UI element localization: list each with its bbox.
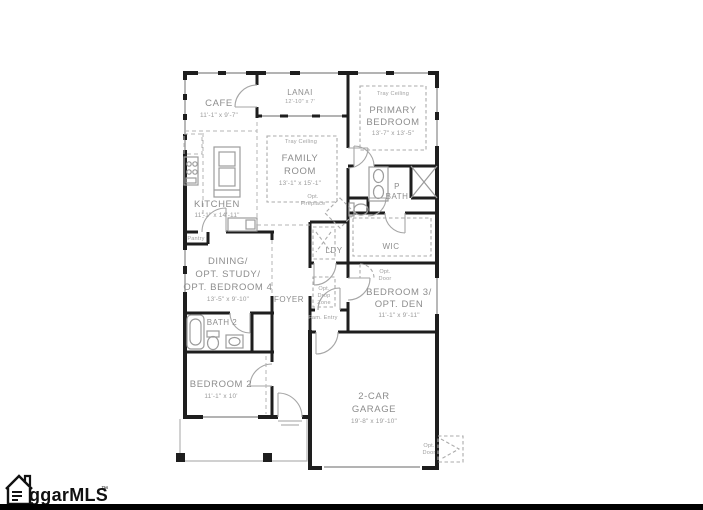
primary-bath-label-2: BATH <box>386 192 409 201</box>
room-bedroom3: Opt. Door BEDROOM 3/ OPT. DEN 11'-1" x 9… <box>366 269 432 319</box>
dining-label-2: OPT. STUDY/ <box>195 269 260 280</box>
family-room-dims: 13'-1" x 15'-1" <box>279 180 321 187</box>
opt-fireplace-label-1: Opt. <box>307 194 319 200</box>
lanai-dims: 12'-10" x 7' <box>285 99 315 105</box>
foyer-label: FOYER <box>274 295 304 304</box>
primary-bedroom-dims: 13'-7" x 13'-5" <box>372 130 414 137</box>
room-bedroom2: BEDROOM 2 11'-1" x 10' <box>190 379 252 400</box>
mls-watermark: ggarMLS ™ <box>6 476 108 505</box>
bedroom2-dims: 11'-1" x 10' <box>204 393 237 400</box>
drop-zone-label-3: Zone <box>317 300 331 306</box>
opt-door-bedroom3-swing <box>360 264 374 278</box>
fam-entry-label: Fam. Entry <box>308 315 337 321</box>
laundry-label: LDY <box>325 246 342 255</box>
mls-trademark: ™ <box>101 486 108 493</box>
kitchen-island <box>214 147 240 197</box>
room-family: Tray Ceiling FAMILY ROOM 13'-1" x 15'-1"… <box>279 139 326 207</box>
tray-ceiling-label: Tray Ceiling <box>377 91 409 97</box>
primary-bath-fixtures <box>349 166 437 216</box>
room-wic: WIC <box>382 242 399 251</box>
room-cafe: CAFE 11'-1" x 9'-7" <box>200 98 238 119</box>
garage-label-1: 2-CAR <box>358 391 390 402</box>
porch-post <box>176 453 185 462</box>
kitchen-label: KITCHEN <box>194 199 240 210</box>
drop-zone-label-1: Opt. <box>318 286 330 292</box>
bedroom3-label-1: BEDROOM 3/ <box>366 287 432 298</box>
primary-bedroom-label-1: PRIMARY <box>369 105 416 116</box>
garage-label-2: GARAGE <box>352 404 396 415</box>
family-room-label-2: ROOM <box>284 166 316 177</box>
bedroom3-dims: 11'-1" x 9'-11" <box>378 312 419 319</box>
opt-door-label-2: Door <box>379 276 392 282</box>
primary-bath-label-1: P <box>394 182 400 191</box>
porch <box>176 419 307 462</box>
opt-door-garage-label-1: Opt. <box>423 443 435 449</box>
cafe-label: CAFE <box>205 98 233 109</box>
cafe-dims: 11'-1" x 9'-7" <box>200 112 238 119</box>
lanai-label: LANAI <box>287 88 313 97</box>
dining-dims: 13'-5" x 9'-10" <box>207 296 249 303</box>
garage-dims: 19'-8" x 19'-10" <box>351 418 397 425</box>
room-garage: 2-CAR GARAGE 19'-8" x 19'-10" Opt. Door <box>351 391 436 456</box>
mls-brand-text: ggarMLS <box>29 485 108 505</box>
opt-fireplace-label-2: Fireplace <box>301 201 326 207</box>
room-dining: DINING/ OPT. STUDY/ OPT. BEDROOM 4 13'-5… <box>183 256 272 303</box>
floor-plan-image: CAFE 11'-1" x 9'-7" LANAI 12'-10" x 7' T… <box>0 0 703 510</box>
wic-label: WIC <box>382 242 399 251</box>
tray-ceiling-label: Tray Ceiling <box>285 139 317 145</box>
floor-plan-svg: CAFE 11'-1" x 9'-7" LANAI 12'-10" x 7' T… <box>0 0 703 510</box>
porch-post <box>263 453 272 462</box>
opt-door-garage-label-2: Door <box>423 450 436 456</box>
opt-door-garage-swing <box>438 436 463 462</box>
primary-bedroom-label-2: BEDROOM <box>366 117 419 128</box>
room-laundry: LDY <box>325 246 342 255</box>
kitchen-dims: 11'-1" x 14'-11" <box>194 212 239 219</box>
room-bath2: BATH 2 <box>207 318 237 327</box>
room-kitchen: KITCHEN 11'-1" x 14'-11" Pantry <box>187 199 240 242</box>
room-foyer: FOYER <box>274 295 304 304</box>
dining-label-3: OPT. BEDROOM 4 <box>183 282 272 293</box>
dining-label-1: DINING/ <box>208 256 248 267</box>
pantry-label: Pantry <box>187 236 204 242</box>
drop-zone-label-2: Drop <box>318 293 331 299</box>
bedroom3-label-2: OPT. DEN <box>375 299 424 310</box>
opt-door-label-1: Opt. <box>379 269 391 275</box>
drop-zone: Opt. Drop Zone Fam. Entry <box>308 286 337 321</box>
bottom-border-bar <box>0 504 703 510</box>
bath2-label: BATH 2 <box>207 318 237 327</box>
family-room-label-1: FAMILY <box>282 153 319 164</box>
room-primary-bath: P BATH <box>386 182 409 201</box>
bedroom2-label: BEDROOM 2 <box>190 379 252 390</box>
room-lanai: LANAI 12'-10" x 7' <box>285 88 315 105</box>
room-primary-bedroom: Tray Ceiling PRIMARY BEDROOM 13'-7" x 13… <box>366 91 419 137</box>
